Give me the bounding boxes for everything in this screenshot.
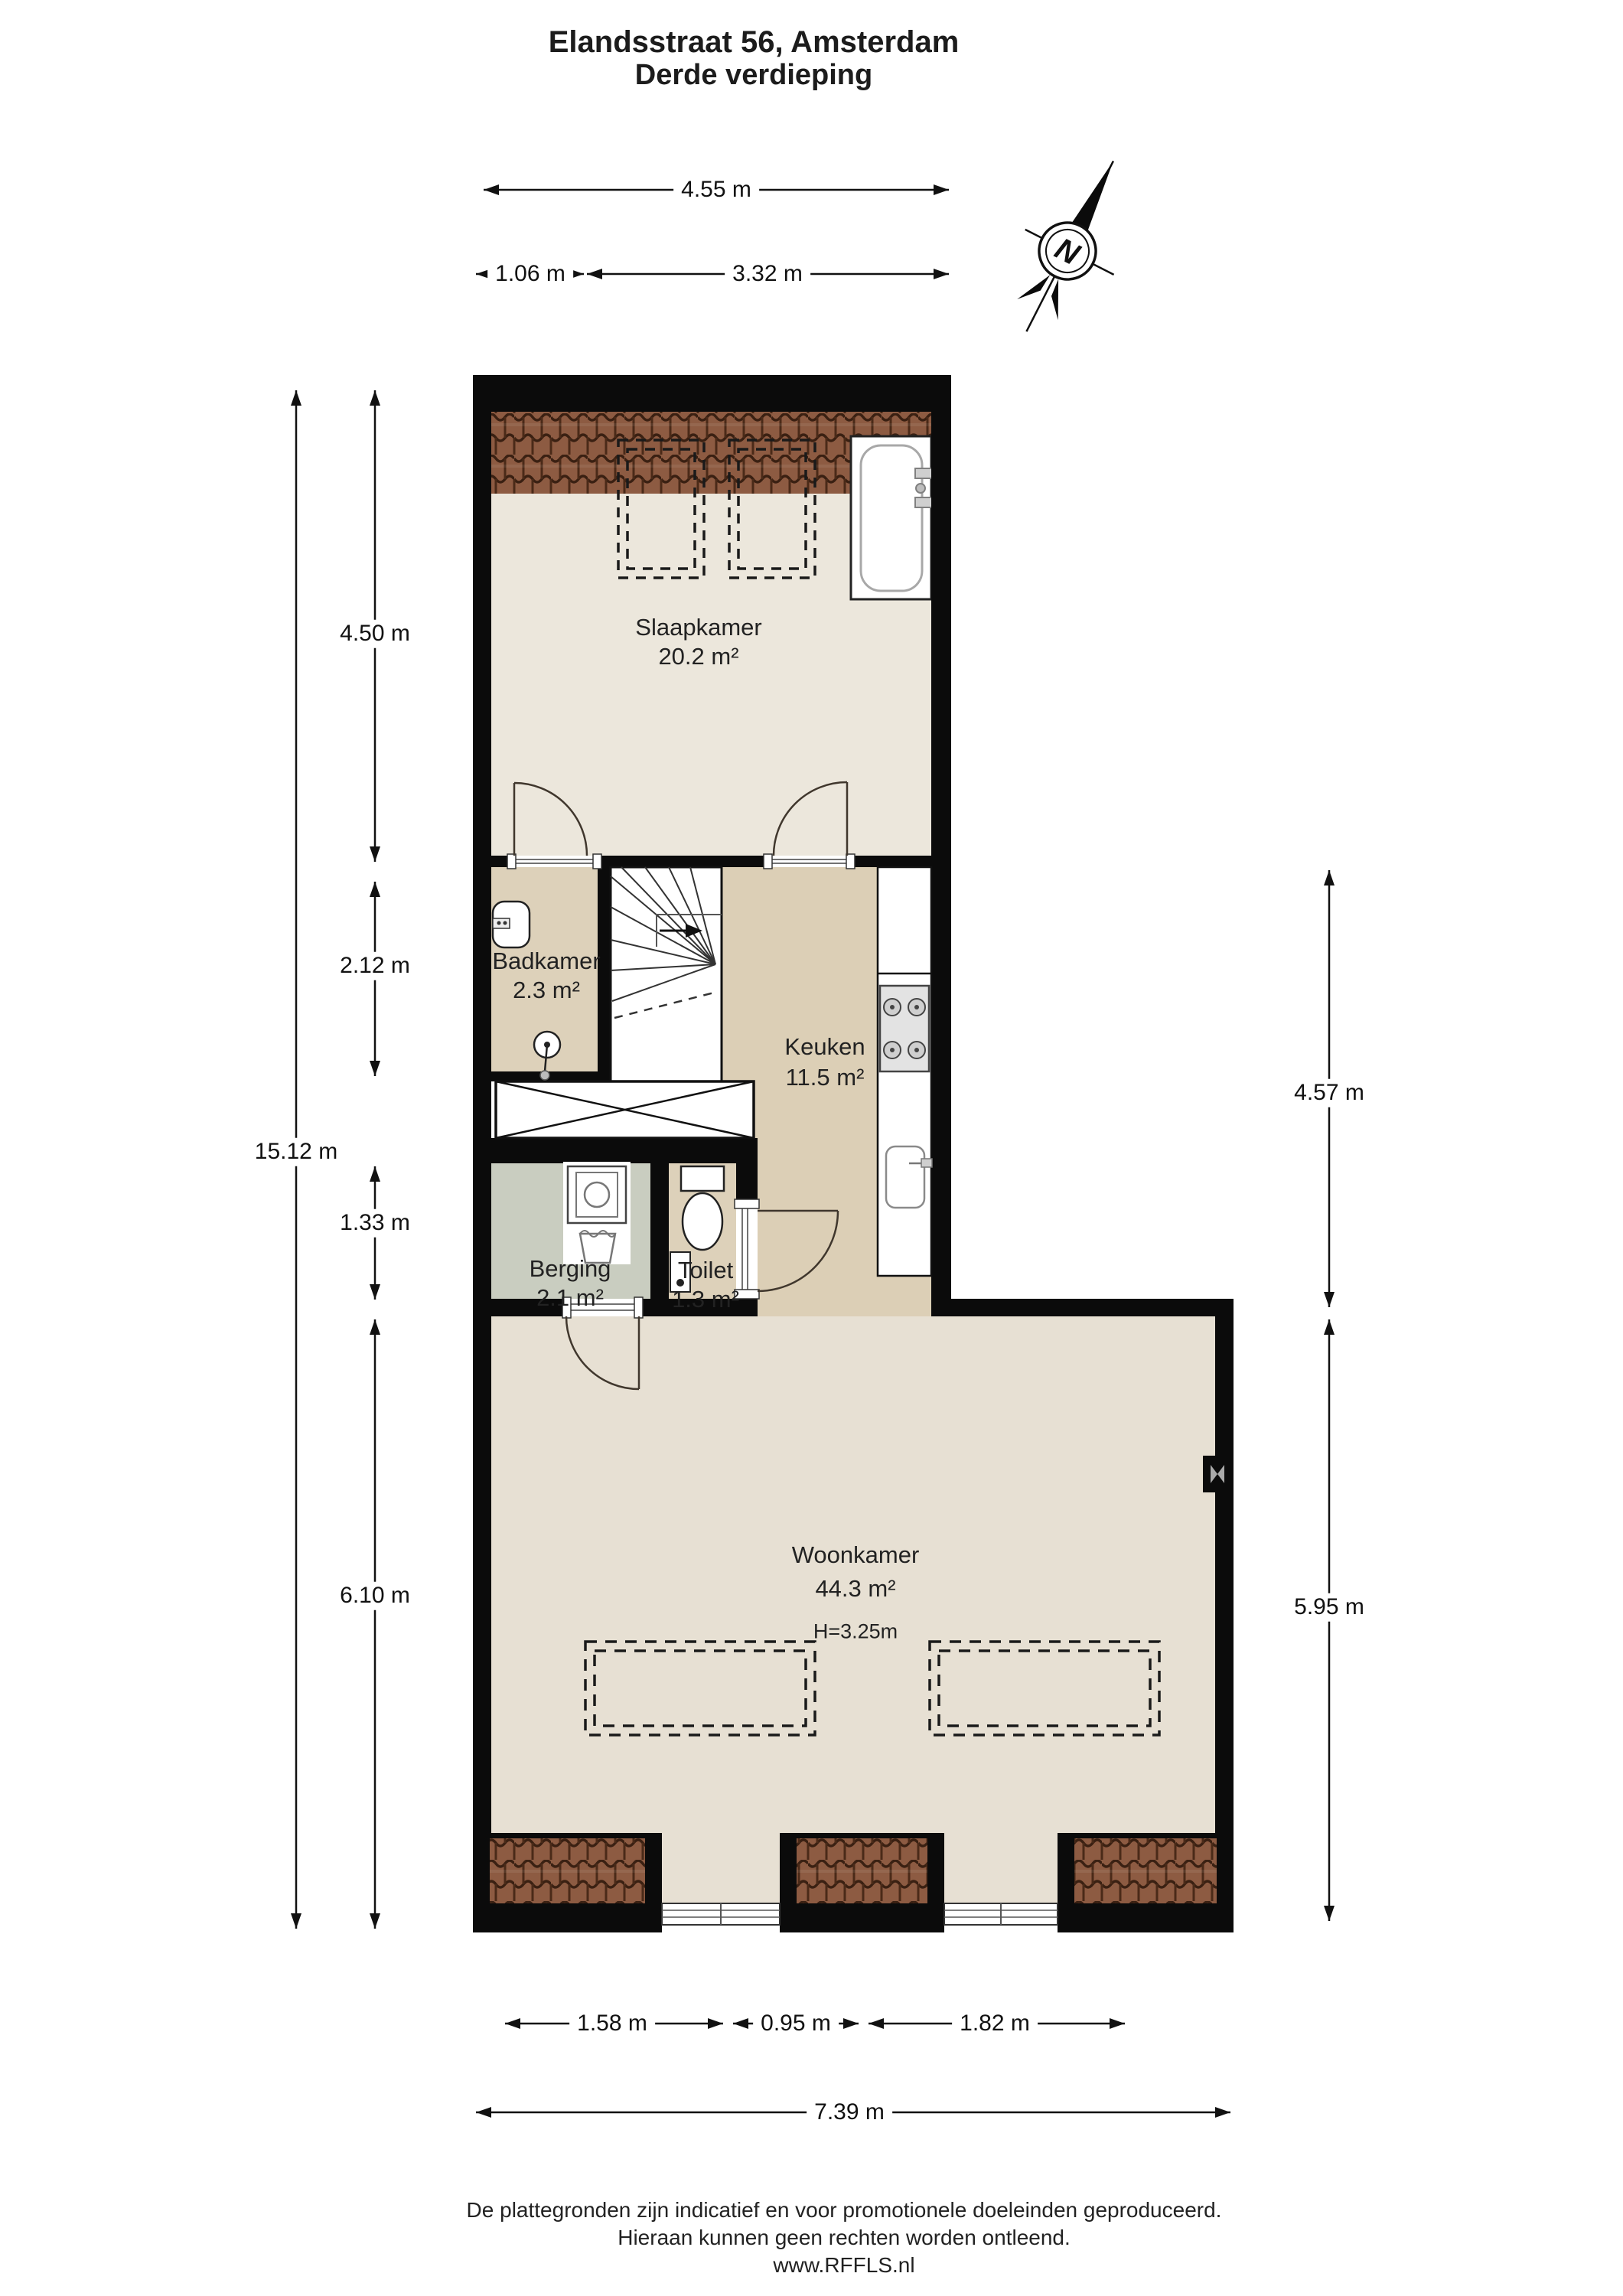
- toilet-door-opening: [736, 1202, 758, 1298]
- wall-step: [931, 1299, 1234, 1316]
- dim-label-bottom-total: 7.39 m: [807, 2099, 892, 2127]
- bedroom-left-door-opening: [510, 856, 598, 867]
- window-left: [662, 1903, 780, 1925]
- page-title-address: Elandsstraat 56, Amsterdam: [549, 24, 960, 60]
- void-x-box: [496, 1081, 754, 1138]
- dim-label-left-storage: 1.33 m: [332, 1209, 418, 1238]
- room-area-woonkamer: 44.3 m²: [815, 1575, 895, 1603]
- window-right: [944, 1903, 1058, 1925]
- room-label-woonkamer: Woonkamer: [792, 1541, 920, 1569]
- toilet-icon: [681, 1166, 724, 1250]
- kitchen-counter: [878, 867, 932, 1276]
- dim-label-bottom-left: 1.58 m: [569, 2010, 655, 2038]
- bottom-facade: [473, 1833, 1234, 1932]
- dim-label-right-lower: 5.95 m: [1286, 1593, 1372, 1622]
- dim-label-top-right: 3.32 m: [725, 260, 810, 289]
- room-area-berging: 2.1 m²: [536, 1284, 604, 1312]
- wall-storage-east: [650, 1163, 669, 1301]
- room-label-toilet: Toilet: [678, 1257, 733, 1284]
- bathtub-icon: [851, 436, 935, 599]
- compass-icon: N: [984, 139, 1159, 355]
- dim-label-left-living: 6.10 m: [332, 1582, 418, 1610]
- dim-label-left-total: 15.12 m: [247, 1138, 345, 1166]
- page-title-floor: Derde verdieping: [635, 59, 872, 93]
- dim-label-left-bathroom: 2.12 m: [332, 952, 418, 980]
- bathroom-sink-icon: [493, 902, 530, 947]
- room-label-slaapkamer: Slaapkamer: [635, 614, 761, 641]
- washing-machine-icon: [563, 1162, 631, 1264]
- floorplan-drawing: N: [0, 0, 1623, 2296]
- room-area-toilet: 1.3 m²: [672, 1286, 739, 1313]
- stove-icon: [880, 986, 929, 1071]
- wall-top-outer: [473, 375, 951, 412]
- wall-void-south: [473, 1138, 758, 1163]
- room-label-berging: Berging: [530, 1255, 611, 1283]
- room-area-slaapkamer: 20.2 m²: [658, 643, 738, 670]
- footer-disclaimer-line2: Hieraan kunnen geen rechten worden ontle…: [618, 2226, 1071, 2250]
- footer-website: www.RFFLS.nl: [773, 2253, 914, 2278]
- bedroom-right-door-opening: [767, 856, 852, 867]
- floorplan-page: N Elandsstraat 56, Amsterdam Derde verdi…: [0, 0, 1623, 2296]
- stairs-icon: [611, 867, 722, 1081]
- dim-label-bottom-middle: 0.95 m: [753, 2010, 839, 2038]
- dim-label-right-upper: 4.57 m: [1286, 1079, 1372, 1107]
- room-area-badkamer: 2.3 m²: [513, 977, 580, 1004]
- room-label-badkamer: Badkamer: [492, 947, 600, 975]
- footer-disclaimer-line1: De plattegronden zijn indicatief en voor…: [467, 2198, 1222, 2223]
- flue-box: [1203, 1456, 1234, 1492]
- dim-label-top-left: 1.06 m: [487, 260, 573, 289]
- room-label-keuken: Keuken: [784, 1033, 865, 1061]
- dim-label-left-bedroom: 4.50 m: [332, 620, 418, 648]
- livingroom-floor: [491, 1316, 1215, 1906]
- wall-right-narrow: [931, 375, 951, 1316]
- kitchen-sink-icon: [886, 1146, 932, 1208]
- room-height-woonkamer: H=3.25m: [813, 1619, 898, 1643]
- dim-label-top-total: 4.55 m: [673, 176, 759, 204]
- room-area-keuken: 11.5 m²: [786, 1064, 865, 1091]
- dim-label-bottom-right: 1.82 m: [952, 2010, 1038, 2038]
